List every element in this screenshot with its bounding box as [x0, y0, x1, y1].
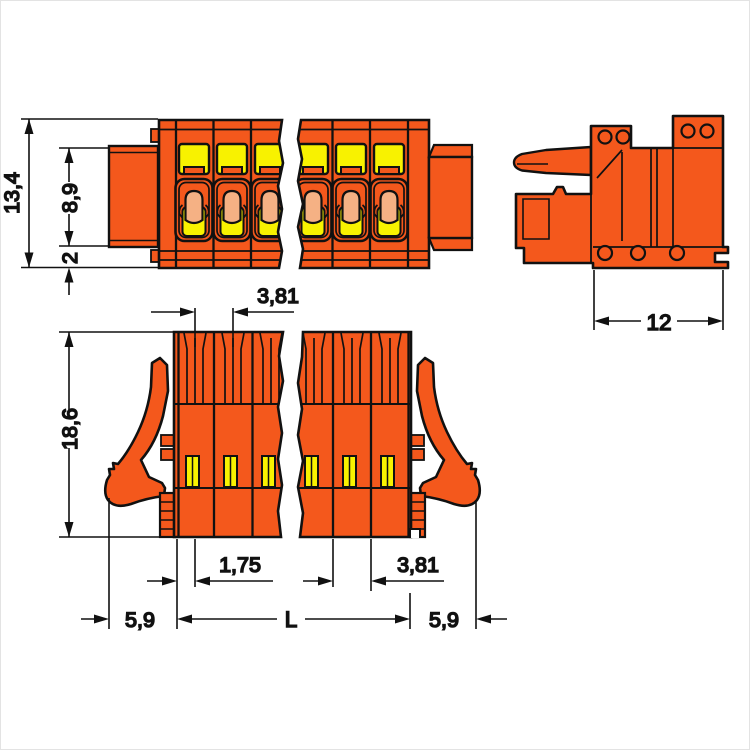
dim-label-first-pole-offset: 1,75 [219, 553, 261, 577]
dim-label-pitch-bottom: 3,81 [397, 553, 439, 577]
dim-label-overall-height: 13,4 [1, 172, 24, 214]
top-housing-right-section [298, 332, 411, 537]
side-lever-arm [514, 147, 591, 175]
strain-relief-latch-block [429, 145, 472, 250]
top-housing-left-section [174, 332, 283, 537]
dim-bottom-row: 5,9 L 5,9 [81, 498, 507, 632]
dim-flange-offset: 2 [58, 252, 82, 295]
connector-dimensional-drawing: 13,4 8,9 2 12 18,6 [1, 1, 750, 751]
dim-label-pitch-top: 3,81 [257, 284, 299, 308]
dim-side-depth: 12 [594, 270, 723, 335]
dim-label-margin-left: 5,9 [125, 608, 155, 632]
dim-mating-height: 8,9 [58, 148, 109, 246]
front-view [109, 120, 472, 268]
side-view [514, 116, 728, 268]
dim-label-overall-depth: 18,6 [58, 408, 82, 450]
bottom-edge-notch [410, 529, 420, 538]
dim-pitch-bottom: 3,81 [303, 539, 444, 591]
locking-lever-right [410, 358, 480, 537]
technical-drawing-page: 13,4 8,9 2 12 18,6 [0, 0, 750, 750]
mating-plug-block [109, 146, 158, 247]
dim-label-side-depth: 12 [646, 310, 671, 335]
dim-label-length: L [285, 607, 298, 632]
dim-label-margin-right: 5,9 [429, 608, 459, 632]
locking-lever-left [105, 358, 175, 537]
dim-label-flange-offset: 2 [58, 252, 82, 264]
top-view [105, 332, 480, 538]
dim-label-mating-height: 8,9 [58, 183, 82, 213]
dim-first-pole-offset: 1,75 [147, 539, 273, 629]
